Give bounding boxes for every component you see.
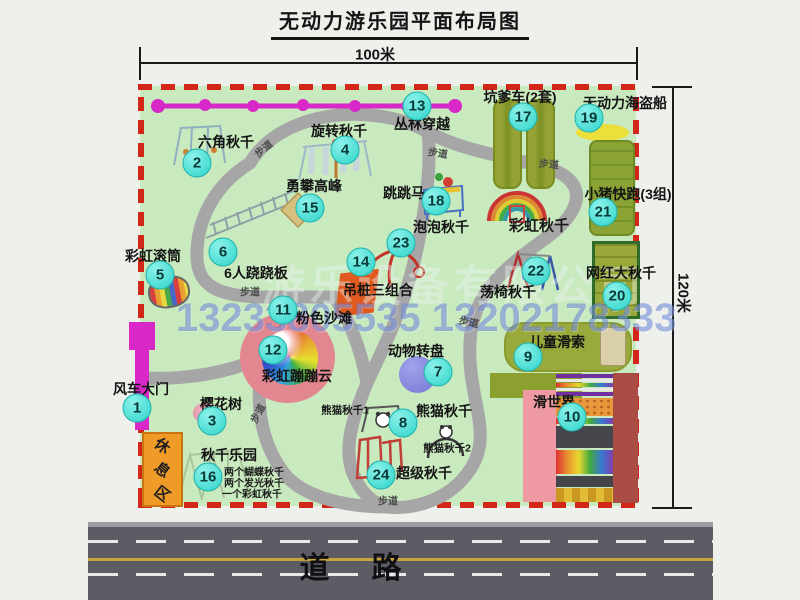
- attraction-badge-18[interactable]: 18: [422, 187, 451, 216]
- rest-area-char: 休: [150, 433, 175, 459]
- attraction-badge-20[interactable]: 20: [603, 282, 632, 311]
- windmill-gate-top: [129, 322, 155, 350]
- extra-label-2: 熊猫秋千2: [423, 441, 471, 456]
- attraction-badge-8[interactable]: 8: [389, 409, 418, 438]
- attraction-badge-11[interactable]: 11: [269, 296, 298, 325]
- walkway-label-1: 步道: [427, 143, 449, 161]
- dim-top-tick-left: [139, 47, 141, 80]
- extra-label-0: 彩虹秋千: [509, 215, 569, 236]
- attraction-label-22: 荡椅秋千: [480, 282, 536, 302]
- attraction-badge-22[interactable]: 22: [522, 257, 551, 286]
- walkway-label-3: 步道: [240, 284, 260, 299]
- attraction-label-14: 吊桩三组合: [343, 280, 413, 300]
- attraction-badge-23[interactable]: 23: [387, 229, 416, 258]
- attraction-label-20: 网红大秋千: [586, 263, 656, 283]
- attraction-badge-17[interactable]: 17: [509, 103, 538, 132]
- screenshot-root: 无动力游乐园平面布局图 100米 120米: [0, 0, 800, 600]
- attraction-label-6: 6人跷跷板: [224, 263, 288, 283]
- attraction-badge-2[interactable]: 2: [183, 149, 212, 178]
- title-wrap: 无动力游乐园平面布局图: [0, 5, 800, 40]
- road-label: 道路: [258, 543, 444, 587]
- rest-area-char: 息: [150, 457, 175, 483]
- extra-label-1: 熊猫秋千1: [321, 403, 369, 418]
- attraction-badge-10[interactable]: 10: [558, 403, 587, 432]
- dim-top-tick-right: [636, 47, 638, 80]
- kids-zipline-tower: [600, 327, 626, 366]
- attraction-badge-15[interactable]: 15: [296, 194, 325, 223]
- attraction-badge-19[interactable]: 19: [575, 104, 604, 133]
- attraction-label-12: 彩虹蹦蹦云: [262, 366, 332, 386]
- attraction-label-15: 勇攀高峰: [286, 176, 342, 196]
- attraction-label-18: 跳跳马: [383, 183, 425, 203]
- page-title: 无动力游乐园平面布局图: [271, 5, 529, 40]
- walkway-label-2: 步道: [538, 155, 559, 172]
- extra-label-5: 一个彩虹秋千: [222, 486, 282, 501]
- attraction-label-23: 泡泡秋千: [413, 217, 469, 237]
- slide-world-red-band: [613, 373, 638, 503]
- road: 道路: [88, 522, 713, 600]
- rest-area-char: 区: [150, 480, 175, 506]
- rest-area: 休息区: [142, 432, 183, 507]
- attraction-badge-3[interactable]: 3: [198, 407, 227, 436]
- attraction-label-24: 超级秋千: [396, 463, 452, 483]
- attraction-badge-4[interactable]: 4: [331, 136, 360, 165]
- attraction-badge-13[interactable]: 13: [403, 92, 432, 121]
- dim-right-tick-bottom: [652, 507, 692, 509]
- attraction-badge-1[interactable]: 1: [123, 394, 152, 423]
- attraction-label-8: 熊猫秋千: [416, 401, 472, 421]
- walkway-label-6: 步道: [378, 493, 398, 508]
- dim-width-label: 100米: [355, 44, 395, 65]
- attraction-badge-5[interactable]: 5: [146, 261, 175, 290]
- attraction-badge-14[interactable]: 14: [347, 248, 376, 277]
- attraction-label-11: 粉色沙滩: [296, 308, 352, 328]
- attraction-badge-7[interactable]: 7: [424, 358, 453, 387]
- attraction-badge-24[interactable]: 24: [367, 461, 396, 490]
- attraction-badge-6[interactable]: 6: [209, 238, 238, 267]
- attraction-label-2: 六角秋千: [198, 132, 254, 152]
- dim-height-label: 120米: [674, 273, 695, 313]
- boundary-top: [138, 84, 639, 90]
- attraction-badge-21[interactable]: 21: [589, 198, 618, 227]
- attraction-badge-9[interactable]: 9: [514, 343, 543, 372]
- attraction-badge-12[interactable]: 12: [259, 336, 288, 365]
- dim-right-tick-top: [652, 86, 692, 88]
- attraction-badge-16[interactable]: 16: [194, 463, 223, 492]
